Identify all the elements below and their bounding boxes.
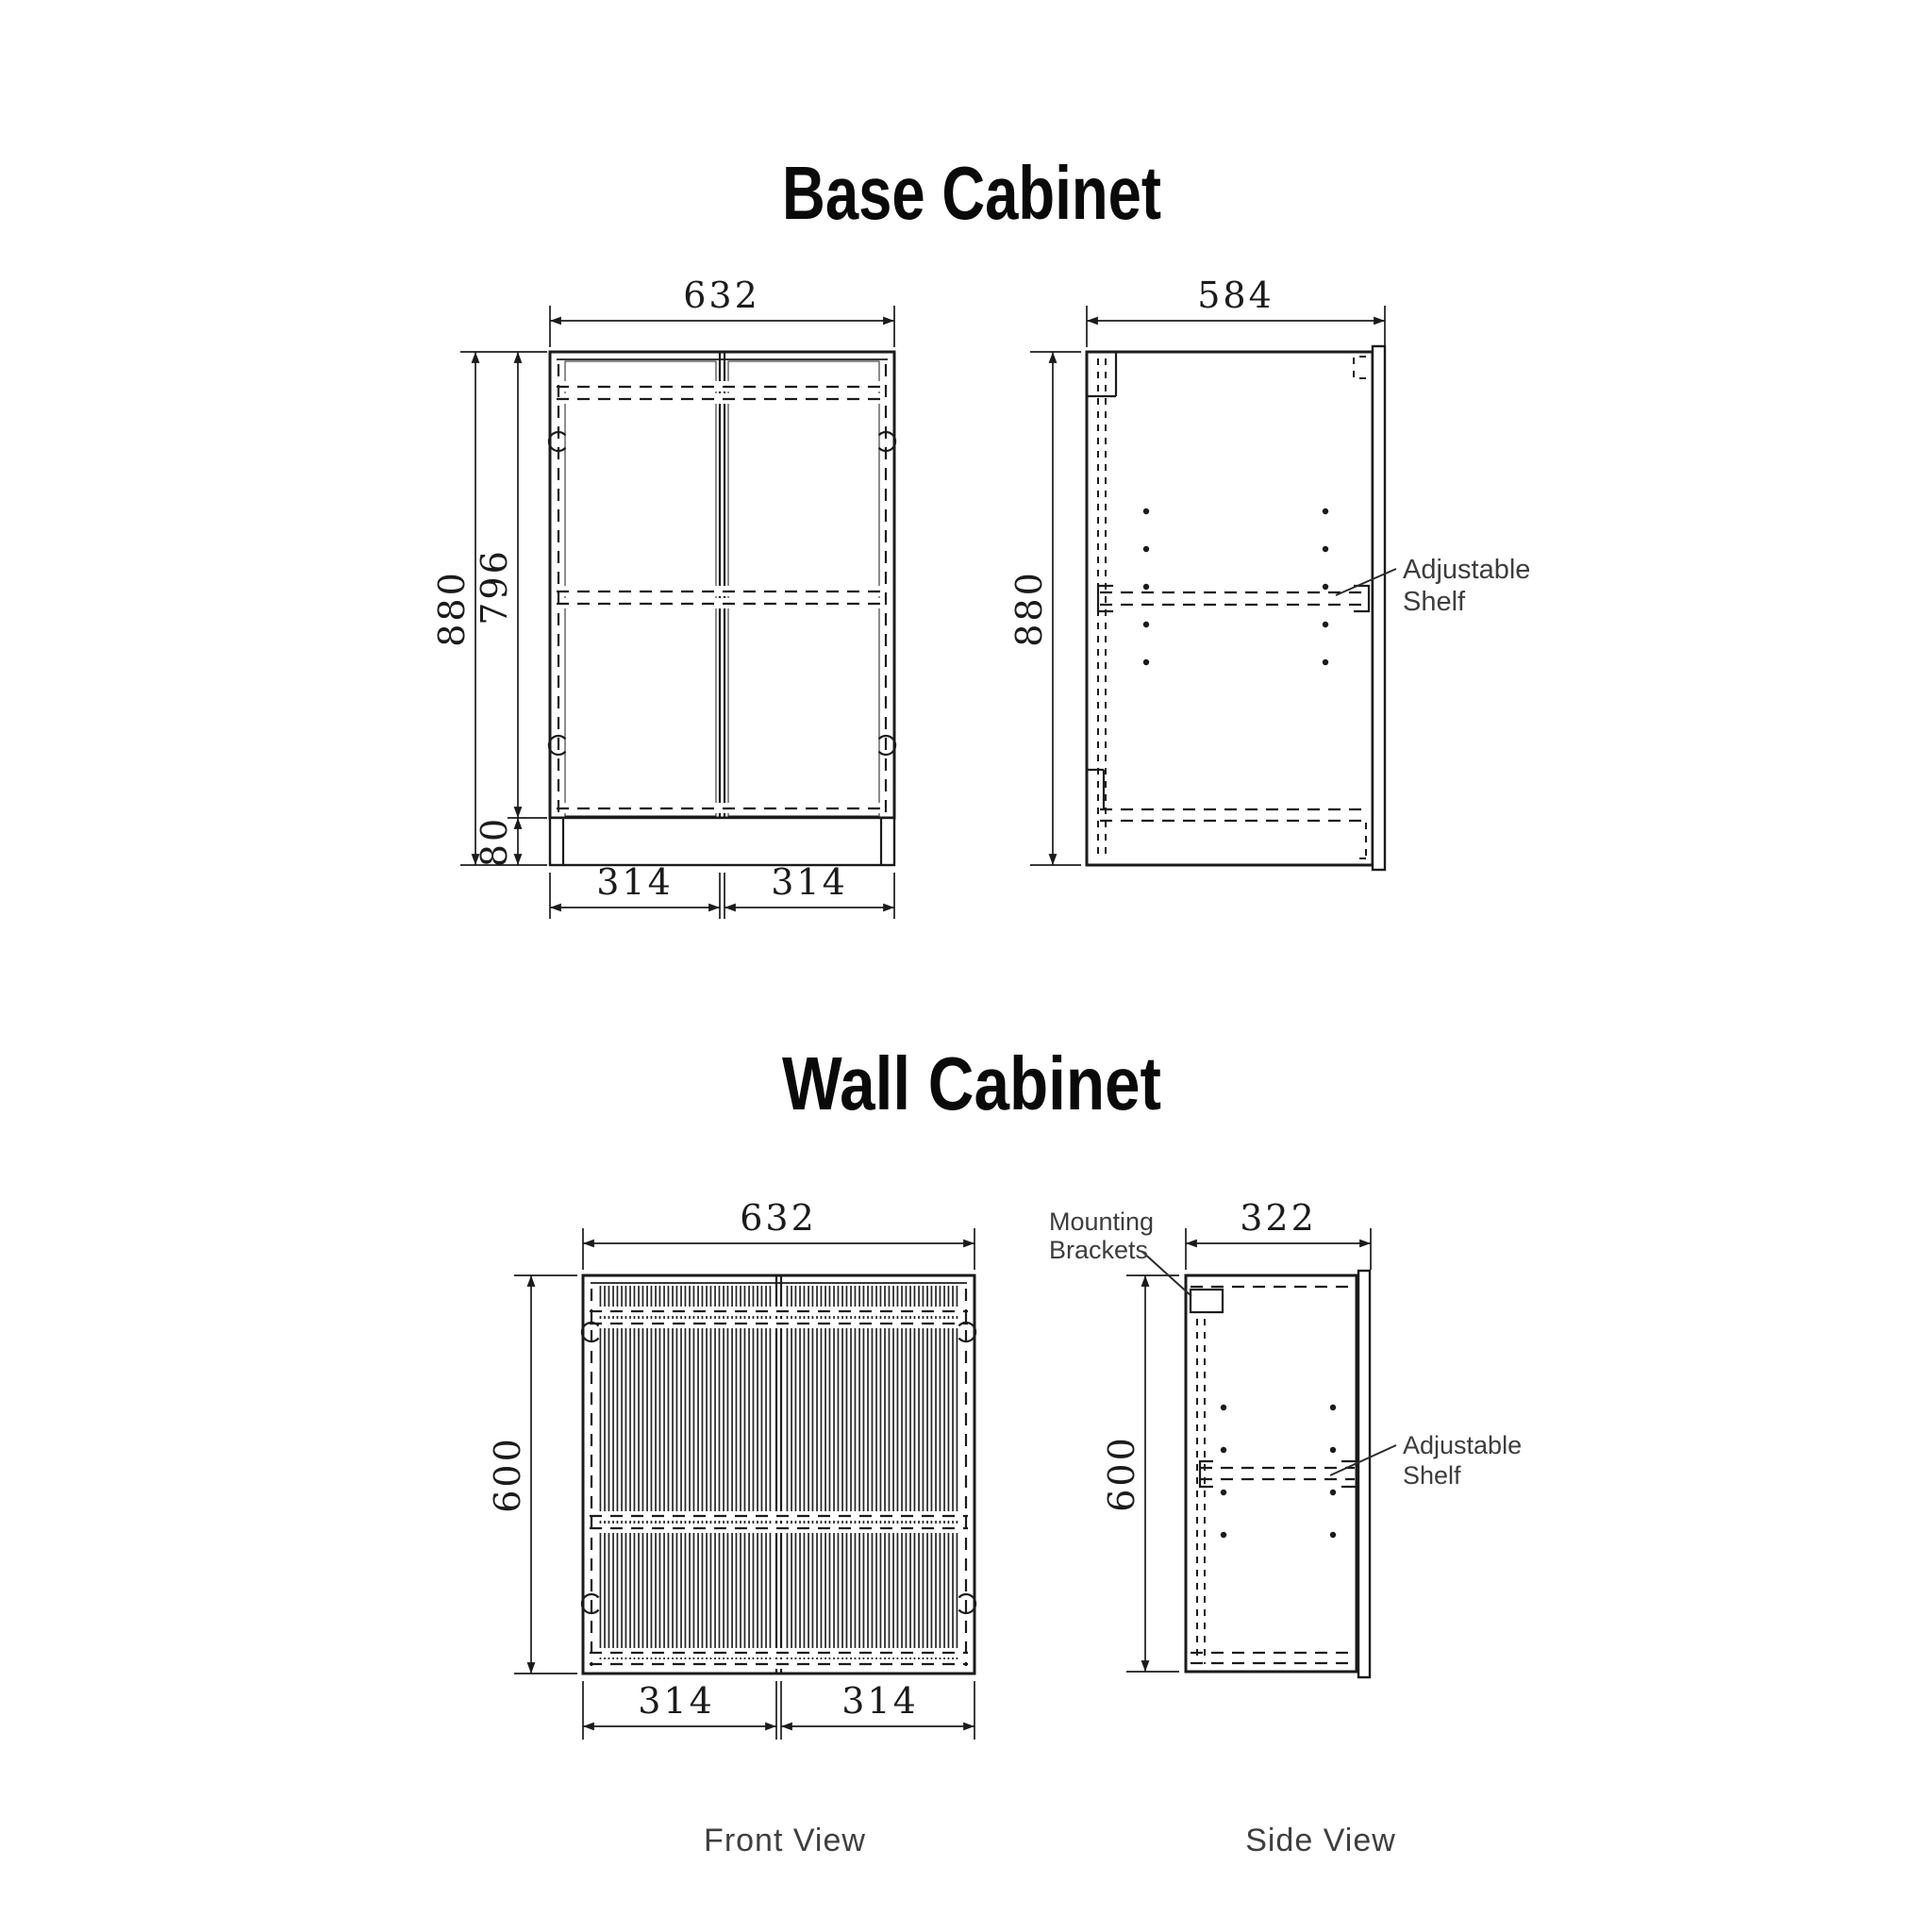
wall-side-view bbox=[1186, 1271, 1370, 1677]
wall-side-dim-depth: 322 bbox=[1186, 1197, 1371, 1270]
wall-front-view bbox=[582, 1275, 975, 1674]
wall-side-dim-height: 600 bbox=[1101, 1275, 1179, 1672]
leader-line bbox=[1141, 1251, 1191, 1296]
base-side-depth-value: 584 bbox=[1197, 275, 1274, 316]
base-front-height-value: 880 bbox=[431, 570, 473, 647]
wall-front-right-door-width-value: 314 bbox=[841, 1680, 919, 1722]
wall-side-mounting-brackets-label: Mounting Brackets bbox=[1049, 1207, 1191, 1296]
base-cabinet-title: Base Cabinet bbox=[782, 151, 1161, 235]
base-front-door-height-value: 796 bbox=[474, 548, 515, 625]
base-side-carcass bbox=[1087, 352, 1373, 865]
wall-front-right-door-flutes bbox=[785, 1286, 959, 1669]
wall-side-mounting-bracket bbox=[1191, 1290, 1223, 1312]
base-side-height-value: 880 bbox=[1008, 570, 1050, 647]
adjustable-shelf-label-line1: Adjustable bbox=[1403, 555, 1530, 585]
mounting-brackets-label-line2: Brackets bbox=[1049, 1236, 1148, 1264]
adjustable-shelf-label-line2: Shelf bbox=[1403, 1461, 1461, 1490]
base-front-plinth bbox=[550, 818, 894, 865]
base-front-dim-plinth-height: 80 bbox=[474, 816, 518, 867]
base-front-width-value: 632 bbox=[683, 275, 760, 316]
base-side-door-panel bbox=[1373, 346, 1385, 870]
wall-front-left-door-flutes bbox=[598, 1286, 773, 1669]
mounting-brackets-label-line1: Mounting bbox=[1049, 1207, 1154, 1236]
base-side-dim-depth: 584 bbox=[1087, 275, 1385, 347]
wall-side-height-value: 600 bbox=[1101, 1435, 1142, 1512]
base-front-carcass bbox=[550, 352, 894, 818]
base-front-dim-door-widths: 314 314 bbox=[550, 861, 894, 919]
base-front-left-door-width-value: 314 bbox=[596, 861, 674, 903]
wall-front-left-door-width-value: 314 bbox=[638, 1680, 715, 1722]
wall-front-dim-height: 600 bbox=[487, 1275, 577, 1674]
base-side-dim-height: 880 bbox=[1008, 352, 1081, 865]
front-view-caption: Front View bbox=[704, 1823, 866, 1858]
wall-side-carcass bbox=[1186, 1275, 1357, 1672]
cabinet-technical-drawing: Base Cabinet bbox=[0, 0, 1932, 1932]
base-front-right-door-width-value: 314 bbox=[771, 861, 848, 903]
adjustable-shelf-label-line1: Adjustable bbox=[1403, 1431, 1522, 1459]
base-front-plinth-height-value: 80 bbox=[474, 816, 515, 867]
base-front-dim-door-height: 796 bbox=[474, 352, 547, 818]
adjustable-shelf-label-line2: Shelf bbox=[1403, 587, 1466, 617]
base-front-view bbox=[549, 352, 895, 865]
wall-front-dim-door-widths: 314 314 bbox=[583, 1680, 974, 1740]
wall-cabinet-title: Wall Cabinet bbox=[782, 1041, 1161, 1125]
wall-side-depth-value: 322 bbox=[1240, 1197, 1317, 1239]
side-view-caption: Side View bbox=[1245, 1823, 1396, 1858]
wall-front-dim-width: 632 bbox=[583, 1197, 974, 1270]
wall-front-width-value: 632 bbox=[740, 1197, 817, 1239]
cabinet-drawing-page: Base Cabinet bbox=[0, 0, 1932, 1932]
wall-side-door-panel bbox=[1358, 1271, 1370, 1677]
wall-front-height-value: 600 bbox=[487, 1436, 528, 1513]
base-side-view bbox=[1087, 346, 1385, 870]
base-front-dim-width: 632 bbox=[550, 275, 894, 347]
